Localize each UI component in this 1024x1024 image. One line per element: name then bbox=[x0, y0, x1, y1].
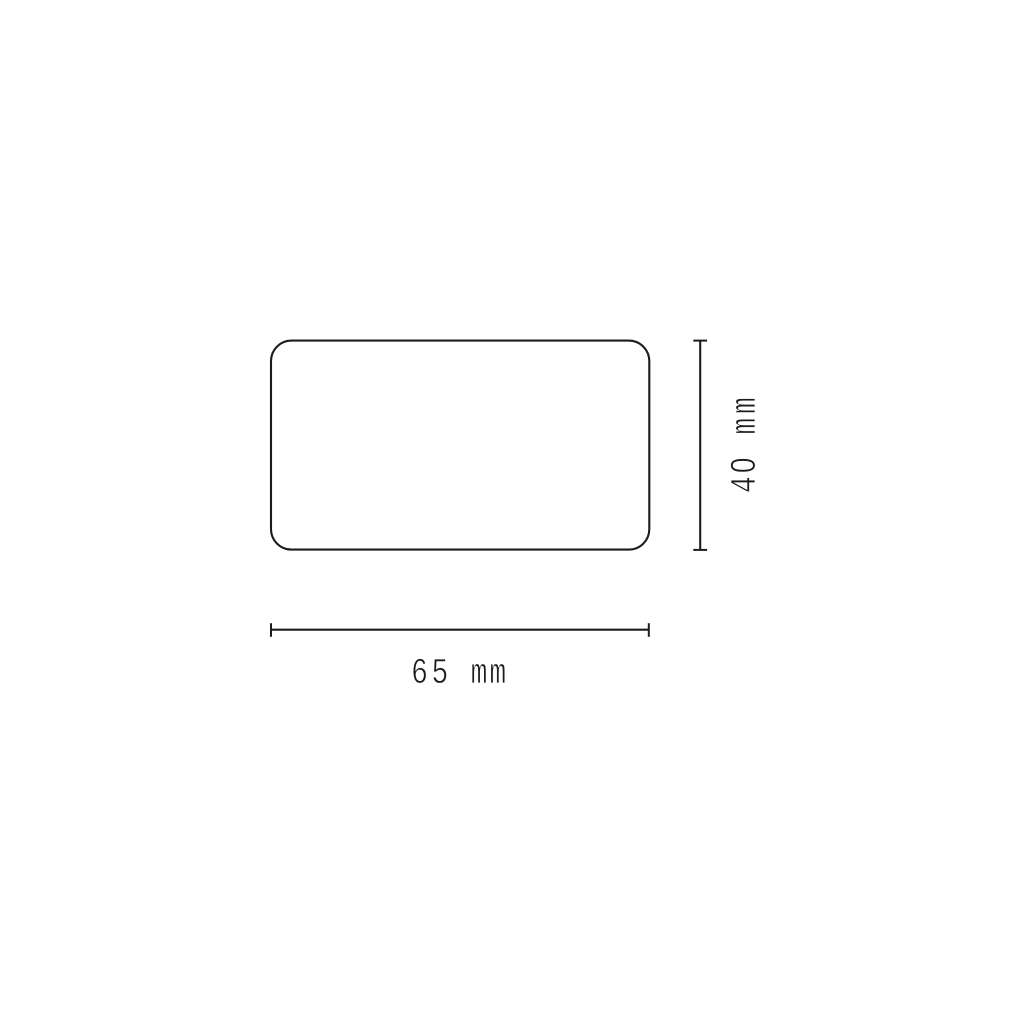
svg-text:6: 6 bbox=[411, 653, 428, 694]
svg-text:m: m bbox=[471, 653, 488, 694]
svg-text:5: 5 bbox=[432, 653, 449, 694]
svg-text:m: m bbox=[725, 397, 766, 414]
svg-text:m: m bbox=[725, 418, 766, 435]
svg-text:4: 4 bbox=[725, 476, 766, 493]
svg-text:m: m bbox=[489, 653, 506, 694]
